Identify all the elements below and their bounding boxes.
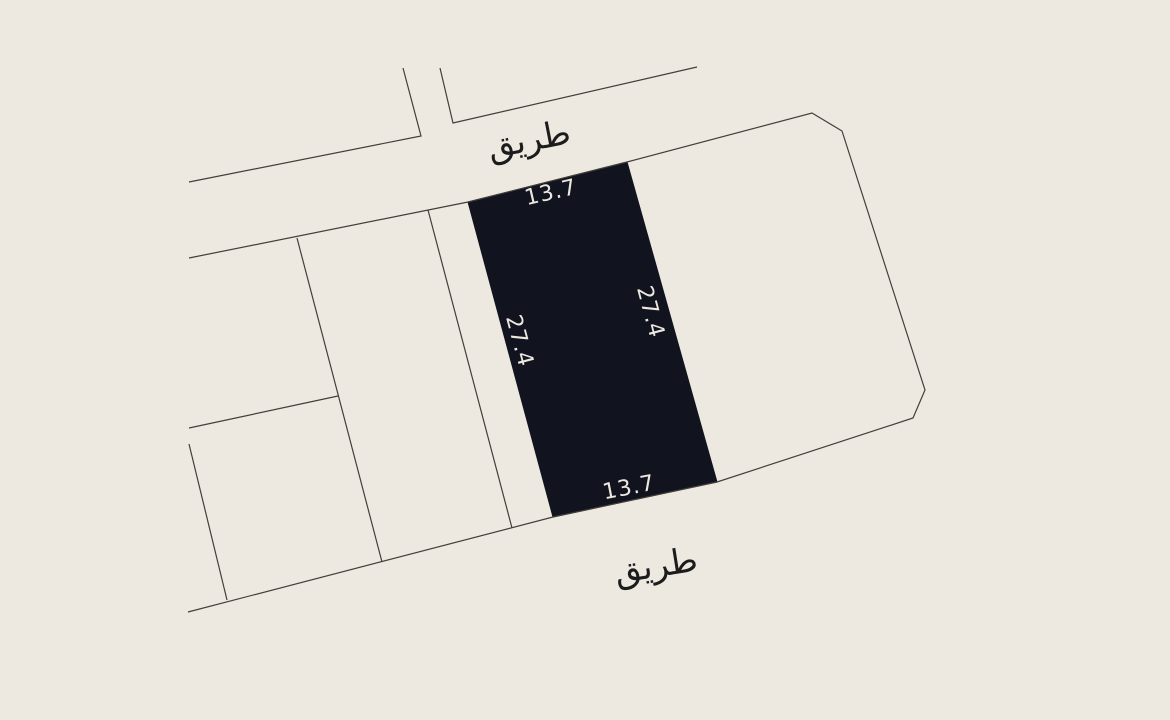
parcel-divider-cross [189,396,338,428]
road-label-top: طريق [484,112,574,167]
highlighted-parcel[interactable] [468,162,717,517]
cadastral-plan-page: طريق طريق 13.7 13.7 27.4 27.4 [0,0,1170,720]
road-top-north-edge-west-segment [189,68,421,182]
parcel-divider-left [297,238,382,562]
road-top-north-edge-east-segment [440,67,697,123]
lower-left-parcel-edge [189,444,227,600]
road-label-bottom: طريق [612,540,701,593]
cadastral-map: طريق طريق 13.7 13.7 27.4 27.4 [0,0,1170,720]
